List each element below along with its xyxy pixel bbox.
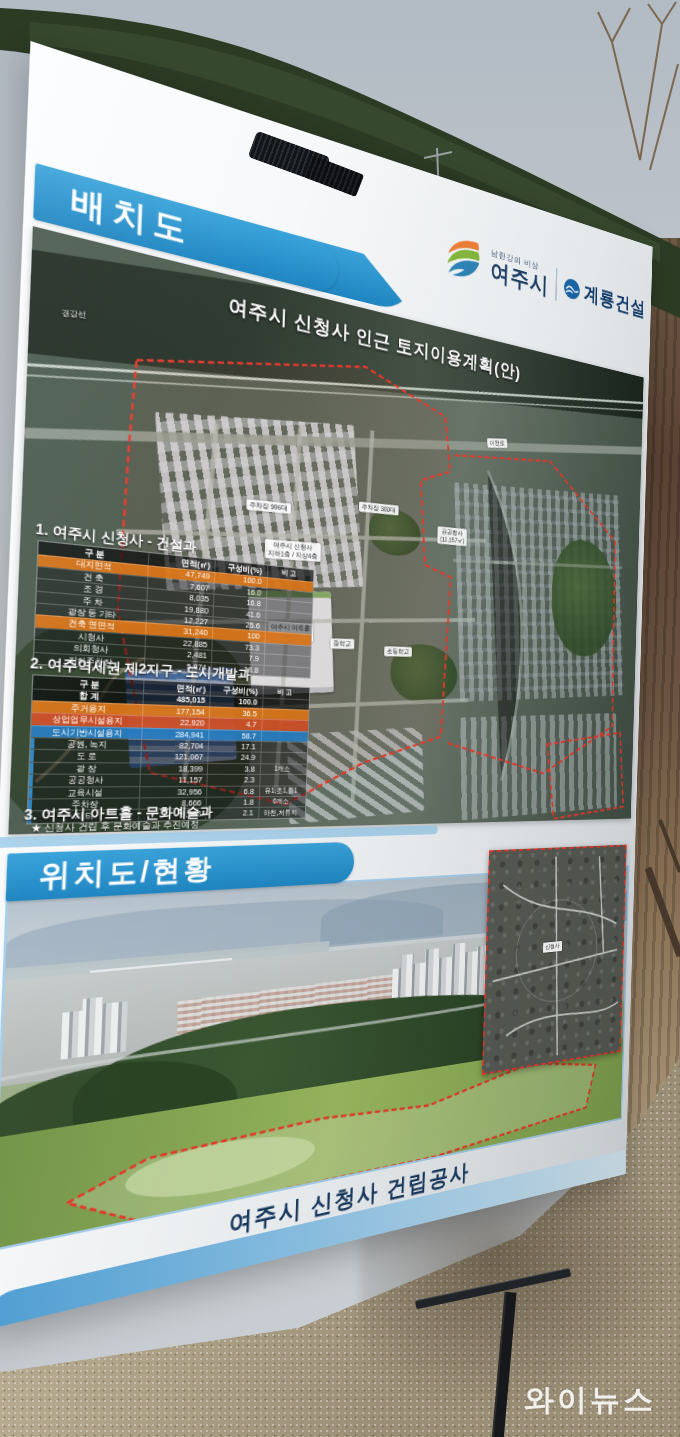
table-row: 광 장18,3993.81개소 [29,762,306,775]
inset-site-chip: 신청사 [543,941,562,953]
inset-roads [484,846,626,1073]
yeoju-city-logo-icon [439,229,484,285]
table-row: 공공청사11,1572.3 [29,774,306,786]
middle-school-chip: 중학교 [331,638,354,649]
kyeryong-logo-icon [563,276,581,302]
signboard: 배치도 남한강의 비상 여주시 계룡건설 [0,41,653,1332]
logo-divider [555,268,557,301]
builder-logo: 계룡건설 [563,273,646,323]
road-label-chip: 이천로 [487,438,507,448]
bare-branches [598,2,678,170]
logo-row: 남한강의 비상 여주시 계룡건설 [428,216,647,339]
builder-name: 계룡건설 [583,279,645,323]
public-office-chip: 공공청사 (11,157㎡) [437,526,466,546]
yeoju-logo-text: 남한강의 비상 여주시 [490,249,550,299]
public-office-line2: (11,157㎡) [440,535,465,545]
table2-header-note: 비 고 [263,686,306,699]
location-map-label: 위치도/현황 [38,849,215,897]
land-use-plan-map: 경강선 이천로 주차장 996대 주차장 300대 공공청사 (11,157㎡)… [8,226,643,834]
table2-header-ratio: 구성비(%) [210,684,263,698]
table2: 구 분 면적(㎡) 구성비(%) 비 고 합 계485,015100.0 주거용… [26,674,310,824]
foreground-branch [648,820,680,956]
elementary-school-chip: 초등학교 [384,646,412,656]
cityhall-chip: 여주시 신청사 지하1층 / 지상4층 [265,539,320,562]
press-watermark: 와이뉴스 [524,1380,656,1421]
rail-label: 경강선 [61,307,87,321]
yeoju-city-name: 여주시 [490,259,549,299]
inset-satellite-map: 신청사 [482,845,627,1076]
